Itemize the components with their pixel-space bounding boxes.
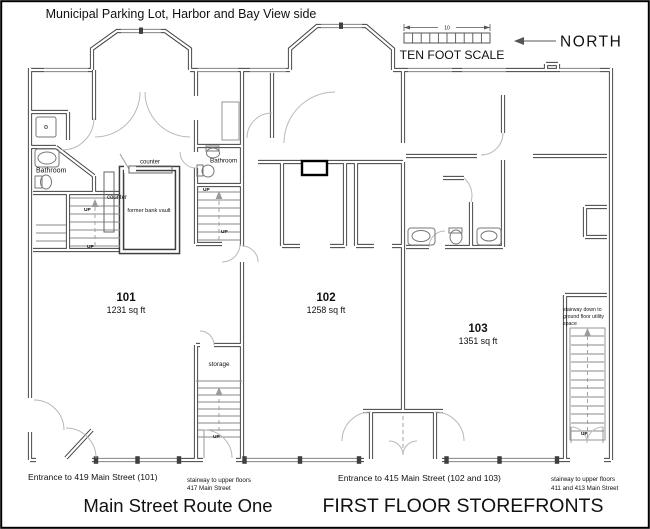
up-label: UP xyxy=(221,229,228,235)
counter-fixture xyxy=(104,172,114,232)
street-annotations: Entrance to 419 Main Street (101) stairw… xyxy=(28,472,619,492)
toilet-fixture xyxy=(207,148,220,158)
up-label: UP xyxy=(581,431,588,437)
page-border xyxy=(1,1,649,528)
unit-102-number: 102 xyxy=(316,292,335,304)
shower-fixture xyxy=(36,117,56,137)
stair-down-note: stairway down to ground floor utility sp… xyxy=(563,307,604,327)
scale-dimension-label: 10 xyxy=(444,26,450,32)
vault-label: former bank vault xyxy=(127,208,171,214)
storage-label: storage xyxy=(208,361,230,368)
bathroom-101-label: Bathroom xyxy=(36,168,67,175)
unit-101-number: 101 xyxy=(116,292,136,304)
stair-411-note-line1: stairway to upper floors xyxy=(551,476,615,483)
scale-label: TEN FOOT SCALE xyxy=(400,48,505,62)
counter-top-label: counter xyxy=(140,160,160,166)
scale-bar: 10 TEN FOOT SCALE xyxy=(400,24,505,62)
unit-102-area: 1258 sq ft xyxy=(307,305,346,315)
stair-417-note-line1: stairway to upper floors xyxy=(187,477,251,484)
up-label: UP xyxy=(203,187,210,193)
stair-417-note-line2: 417 Main Street xyxy=(187,485,231,492)
floor-plan-svg: Municipal Parking Lot, Harbor and Bay Vi… xyxy=(0,0,650,529)
stairs xyxy=(36,102,605,454)
up-label: UP xyxy=(213,434,220,440)
svg-text:space: space xyxy=(563,321,577,327)
svg-text:ground floor utility: ground floor utility xyxy=(563,314,604,320)
unit-103-area: 1351 sq ft xyxy=(459,336,498,346)
unit-103-number: 103 xyxy=(468,323,487,335)
entrance-419-note: Entrance to 419 Main Street (101) xyxy=(28,472,158,482)
windows xyxy=(44,23,600,464)
bathroom-core-label: Bathroom xyxy=(210,158,237,165)
north-arrow: NORTH xyxy=(514,34,622,51)
room-labels: 101 1231 sq ft 102 1258 sq ft 103 1351 s… xyxy=(36,158,498,369)
toilet-fixture xyxy=(450,230,462,244)
walls-outer xyxy=(30,26,611,460)
street-title: Main Street Route One xyxy=(83,495,272,516)
stair-411-note-line2: 411 and 413 Main Street xyxy=(551,485,619,492)
up-label: UP xyxy=(87,244,94,250)
highlight-box xyxy=(302,161,327,175)
north-arrowhead-icon xyxy=(514,37,524,45)
parking-lot-caption: Municipal Parking Lot, Harbor and Bay Vi… xyxy=(46,7,317,21)
north-label: NORTH xyxy=(560,34,622,51)
walls-inner xyxy=(30,26,611,460)
door-arcs xyxy=(34,92,603,458)
up-label: UP xyxy=(84,207,91,213)
plan-title: FIRST FLOOR STOREFRONTS xyxy=(323,495,604,517)
sink-fixture xyxy=(202,165,214,177)
counter-side-label: counter xyxy=(107,195,127,201)
svg-text:stairway down to: stairway down to xyxy=(563,307,602,313)
floor-plan-page: Municipal Parking Lot, Harbor and Bay Vi… xyxy=(0,0,650,529)
entrance-415-note: Entrance to 415 Main Street (102 and 103… xyxy=(338,473,501,483)
unit-101-area: 1231 sq ft xyxy=(107,305,146,315)
